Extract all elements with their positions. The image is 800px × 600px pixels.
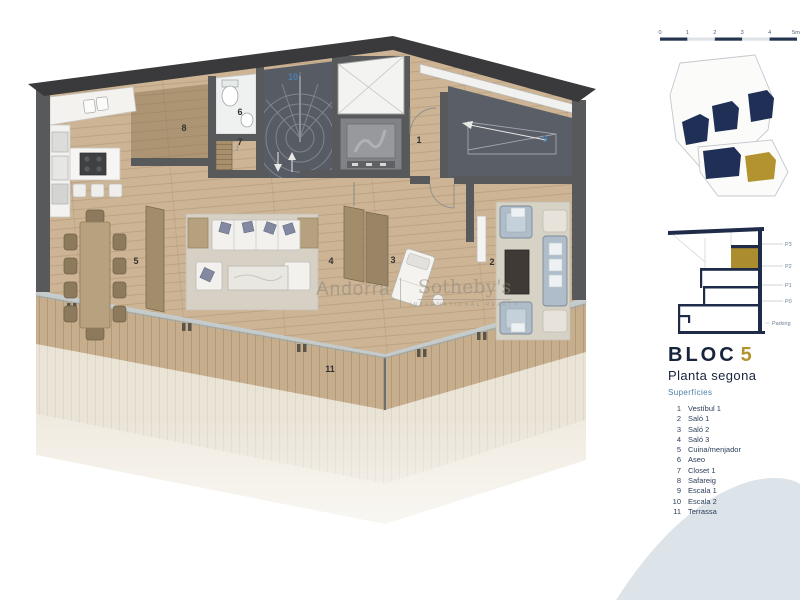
room-number-salo1: 2 — [489, 257, 494, 267]
section-label-p3: P3 — [785, 242, 792, 248]
scale-label-2: 2 — [713, 30, 716, 36]
legend-item: 6Aseo — [668, 455, 800, 465]
site-plan — [648, 52, 800, 202]
legend-item: 1Vestíbul 1 — [668, 404, 800, 414]
room-number-terrassa: 11 — [325, 364, 335, 374]
section-label-p0: P0 — [785, 299, 792, 305]
room-number-escala1: 9 — [542, 134, 547, 144]
legend: Superfícies 1Vestíbul 1 2Saló 1 3Saló 2 … — [668, 388, 800, 517]
room-number-salo3: 4 — [328, 256, 333, 266]
room-number-aseo: 6 — [237, 107, 242, 117]
cooktop — [80, 153, 106, 175]
legend-item: 11Terrassa — [668, 507, 800, 517]
scale-label-4: 4 — [768, 30, 771, 36]
section-label-p1: P1 — [785, 283, 792, 289]
dining-table — [80, 222, 110, 328]
floor-plan: 1 2 3 4 5 6 7 8 9 10 11 — [0, 0, 650, 600]
legend-item: 4Saló 3 — [668, 435, 800, 445]
bottom-fade — [0, 415, 650, 600]
legend-item: 5Cuina/menjador — [668, 445, 800, 455]
building-section: P3 P2 P1 P0 Parking — [648, 222, 800, 342]
legend-item: 2Saló 1 — [668, 414, 800, 424]
section-label-parking: Parking — [772, 321, 791, 327]
wall-right — [572, 100, 586, 300]
sink — [241, 113, 253, 127]
room-number-safareig: 8 — [181, 123, 186, 133]
legend-item: 3Saló 2 — [668, 425, 800, 435]
room-number-cuina: 5 — [133, 256, 138, 266]
living-room-salo3 — [186, 214, 318, 310]
room-number-closet: 7 — [237, 137, 242, 147]
scale-label-0: 0 — [658, 30, 661, 36]
toilet — [222, 86, 238, 106]
scale-label-3: 3 — [741, 30, 744, 36]
title-bloc-number: 5 — [741, 344, 755, 366]
pouf — [543, 210, 567, 232]
pouf — [543, 310, 567, 332]
room-safareig — [131, 84, 208, 158]
page-subtitle: Planta segona — [668, 368, 798, 383]
living-room-salo1 — [496, 202, 570, 340]
partition-panel — [146, 206, 164, 312]
legend-heading: Superfícies — [668, 388, 800, 397]
scale-label-5: 5m — [792, 30, 800, 36]
room-number-escala2: 10 — [288, 72, 298, 82]
legend-item: 7Closet 1 — [668, 466, 800, 476]
title-block: BLOC5 Planta segona — [668, 344, 798, 383]
scale-bar: 0 1 2 3 4 5m — [648, 24, 800, 46]
site-block-2 — [712, 101, 739, 132]
section-label-p2: P2 — [785, 264, 792, 270]
room-number-vestibul: 1 — [416, 135, 421, 145]
legend-item: 8Safareig — [668, 476, 800, 486]
site-block-3 — [748, 90, 774, 122]
room-number-salo2: 3 — [390, 255, 395, 265]
stair-escala2 — [256, 61, 344, 182]
core-block — [332, 56, 410, 178]
wall-left — [36, 90, 50, 292]
radiator — [477, 216, 486, 262]
page-title: BLOC5 — [668, 344, 798, 366]
section-highlight-p2 — [731, 248, 758, 268]
legend-item: 9Escala 1 — [668, 486, 800, 496]
scale-label-1: 1 — [686, 30, 689, 36]
title-bloc: BLOC — [668, 344, 737, 366]
side-table — [433, 295, 444, 306]
site-block-5-highlight — [745, 152, 776, 182]
legend-item: 10Escala 2 — [668, 497, 800, 507]
site-block-4 — [703, 147, 741, 179]
coffee-table — [505, 250, 529, 294]
